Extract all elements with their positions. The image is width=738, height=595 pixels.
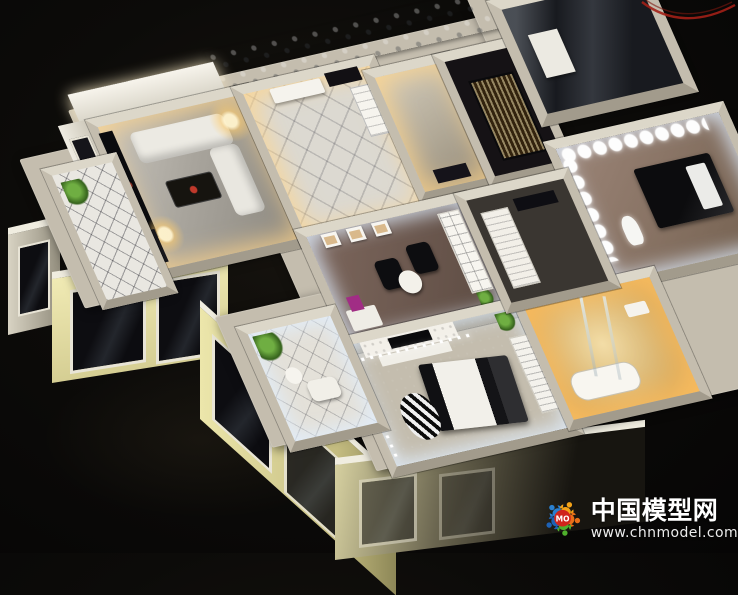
coffee-table	[164, 171, 222, 208]
dark-doorway	[324, 66, 363, 87]
plant	[60, 178, 94, 208]
dress-form	[618, 214, 646, 246]
dark-bed	[633, 152, 735, 228]
window-icon	[439, 467, 495, 540]
wall-picture	[371, 220, 392, 237]
watermark: MO 中国模型网 www.chnmodel.com	[538, 486, 738, 552]
photo-of-scale-model: { "scene": { "subject": "Illuminated res…	[0, 0, 738, 553]
logo-text: MO	[556, 514, 570, 523]
wall-picture	[320, 231, 341, 248]
window-icon	[359, 473, 417, 548]
cabinet	[528, 29, 576, 78]
window-icon	[18, 239, 50, 316]
white-chair	[305, 375, 343, 402]
sink	[623, 300, 650, 317]
small-table	[282, 366, 305, 386]
plant	[494, 311, 520, 333]
sofa	[208, 143, 267, 217]
pillow	[685, 162, 723, 209]
wall-picture	[346, 226, 367, 243]
chnmodel-logo: MO	[538, 488, 589, 550]
dark-doorway	[433, 163, 472, 184]
red-wire	[638, 0, 738, 28]
console-table	[269, 78, 326, 104]
bathtub	[566, 359, 645, 403]
mirror	[513, 190, 559, 211]
plant	[252, 331, 289, 363]
glass-partition	[579, 297, 597, 376]
watermark-site-url: www.chnmodel.com	[591, 525, 738, 541]
wardrobe	[480, 207, 540, 289]
watermark-site-name: 中国模型网	[591, 497, 738, 525]
